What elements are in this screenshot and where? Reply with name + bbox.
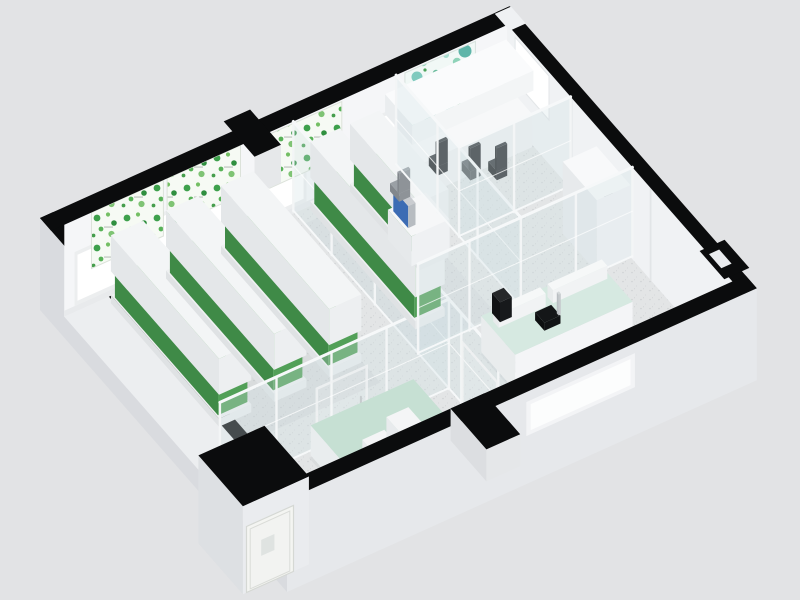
ne-wall-mullion-2	[650, 187, 652, 281]
bench-faucet	[557, 291, 561, 315]
scene-svg	[0, 0, 800, 600]
lab-floorplan-render	[0, 0, 800, 600]
